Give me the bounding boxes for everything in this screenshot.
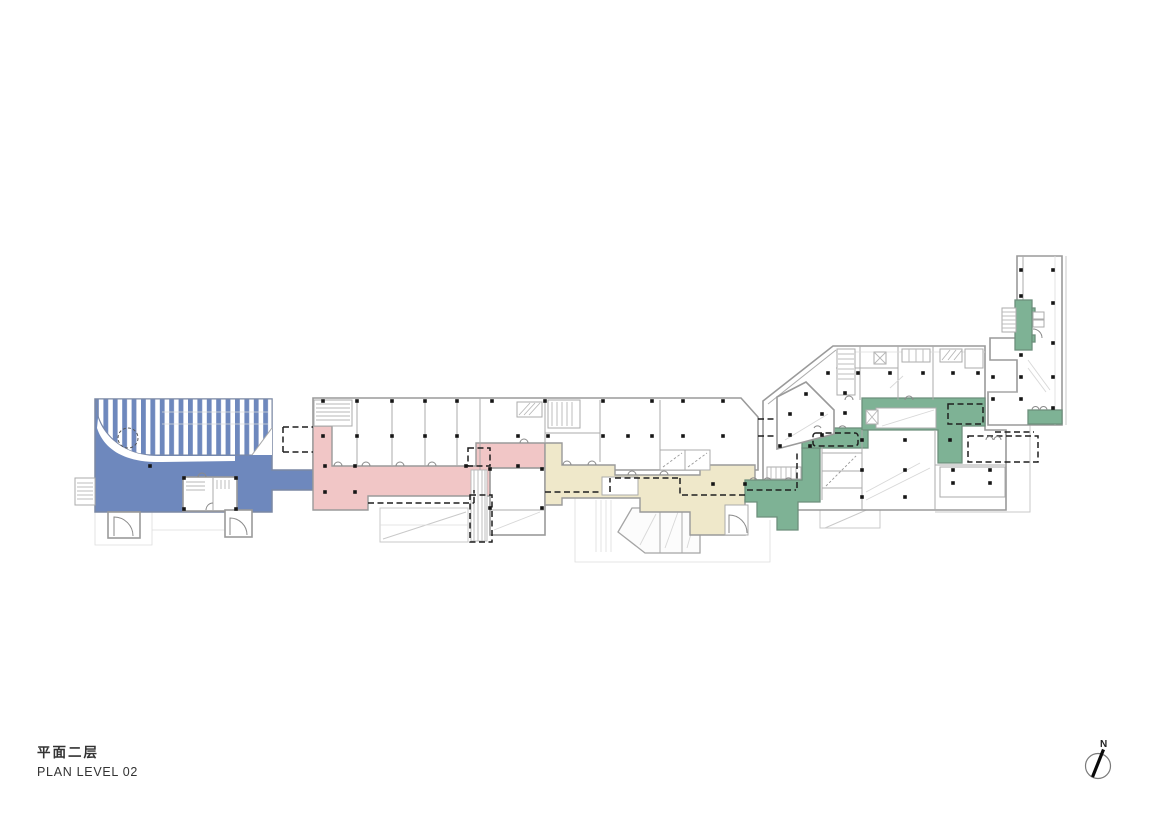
floor-plan <box>0 0 1152 815</box>
stair-pink <box>314 400 352 426</box>
zone-blue <box>75 399 313 538</box>
blue-core-stair <box>183 477 237 511</box>
stair-green <box>767 467 801 479</box>
blue-left-stair <box>75 478 95 505</box>
north-arrow: N <box>1078 736 1122 788</box>
skylight-structure <box>618 508 700 553</box>
floor-plan-drawing <box>0 0 1152 815</box>
plan-title-en: PLAN LEVEL 02 <box>37 765 138 779</box>
plan-title-cn: 平面二层 <box>37 741 138 761</box>
north-label: N <box>1100 739 1107 750</box>
shaft-box <box>866 410 878 424</box>
stair-mid <box>548 400 580 428</box>
escalator-pink <box>471 470 487 541</box>
title-block: 平面二层 PLAN LEVEL 02 <box>37 741 138 779</box>
